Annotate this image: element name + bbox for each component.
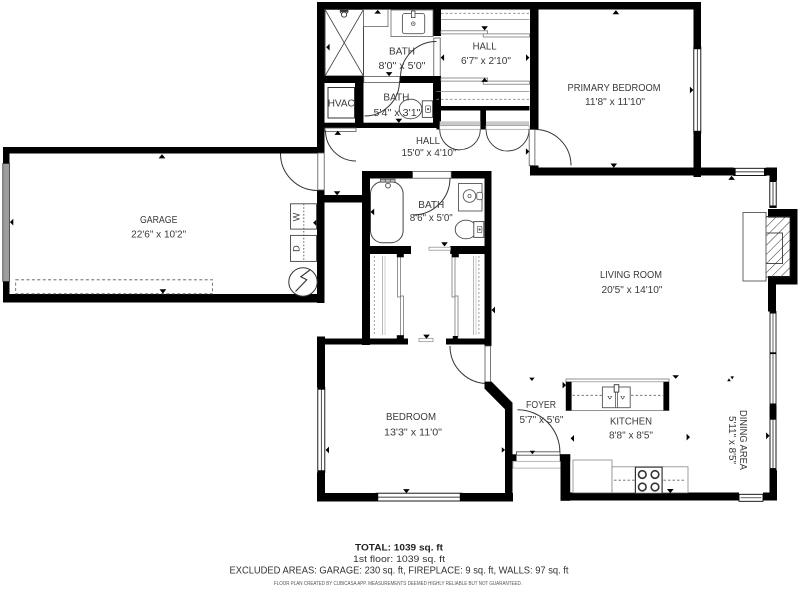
svg-text:8'6" x 5'0": 8'6" x 5'0" [410, 213, 453, 224]
svg-text:GARAGE: GARAGE [140, 215, 178, 226]
svg-text:HVAC: HVAC [328, 98, 355, 109]
svg-text:FLOOR PLAN CREATED BY CUBICASA: FLOOR PLAN CREATED BY CUBICASA APP. MEAS… [274, 581, 522, 587]
svg-text:5'7" x 5'6": 5'7" x 5'6" [520, 415, 564, 426]
svg-text:EXCLUDED AREAS: GARAGE: 230 sq: EXCLUDED AREAS: GARAGE: 230 sq. ft, FIRE… [230, 565, 569, 576]
svg-text:BEDROOM: BEDROOM [386, 412, 436, 423]
svg-text:DINING AREA: DINING AREA [737, 410, 748, 470]
svg-text:22'6" x 10'2": 22'6" x 10'2" [131, 230, 186, 241]
svg-text:HALL: HALL [473, 42, 497, 53]
svg-text:HALL: HALL [416, 136, 440, 147]
svg-text:8'0" x 5'0": 8'0" x 5'0" [379, 61, 426, 72]
svg-text:TOTAL: 1039 sq. ft: TOTAL: 1039 sq. ft [355, 542, 444, 553]
svg-text:KITCHEN: KITCHEN [610, 416, 652, 427]
svg-text:BATH: BATH [418, 200, 444, 211]
svg-text:1st floor: 1039 sq. ft: 1st floor: 1039 sq. ft [353, 554, 445, 565]
svg-text:LIVING ROOM: LIVING ROOM [600, 270, 662, 281]
svg-text:13'3" x 11'0": 13'3" x 11'0" [384, 427, 442, 438]
svg-text:BATH: BATH [383, 93, 409, 104]
svg-text:W: W [292, 212, 302, 221]
svg-text:15'0" x 4'10": 15'0" x 4'10" [402, 148, 457, 159]
svg-text:PRIMARY BEDROOM: PRIMARY BEDROOM [568, 83, 661, 94]
svg-text:5'4" x 3'1": 5'4" x 3'1" [374, 108, 421, 119]
svg-text:FOYER: FOYER [526, 400, 556, 411]
svg-text:11'8" x 11'10": 11'8" x 11'10" [585, 97, 645, 108]
svg-text:5'11" x 8'5": 5'11" x 8'5" [726, 416, 737, 464]
svg-text:D: D [292, 245, 302, 252]
svg-text:6'7" x 2'10": 6'7" x 2'10" [461, 56, 511, 67]
svg-text:20'5" x 14'10": 20'5" x 14'10" [602, 285, 663, 296]
svg-text:BATH: BATH [389, 47, 415, 58]
svg-text:8'8" x 8'5": 8'8" x 8'5" [609, 431, 653, 442]
